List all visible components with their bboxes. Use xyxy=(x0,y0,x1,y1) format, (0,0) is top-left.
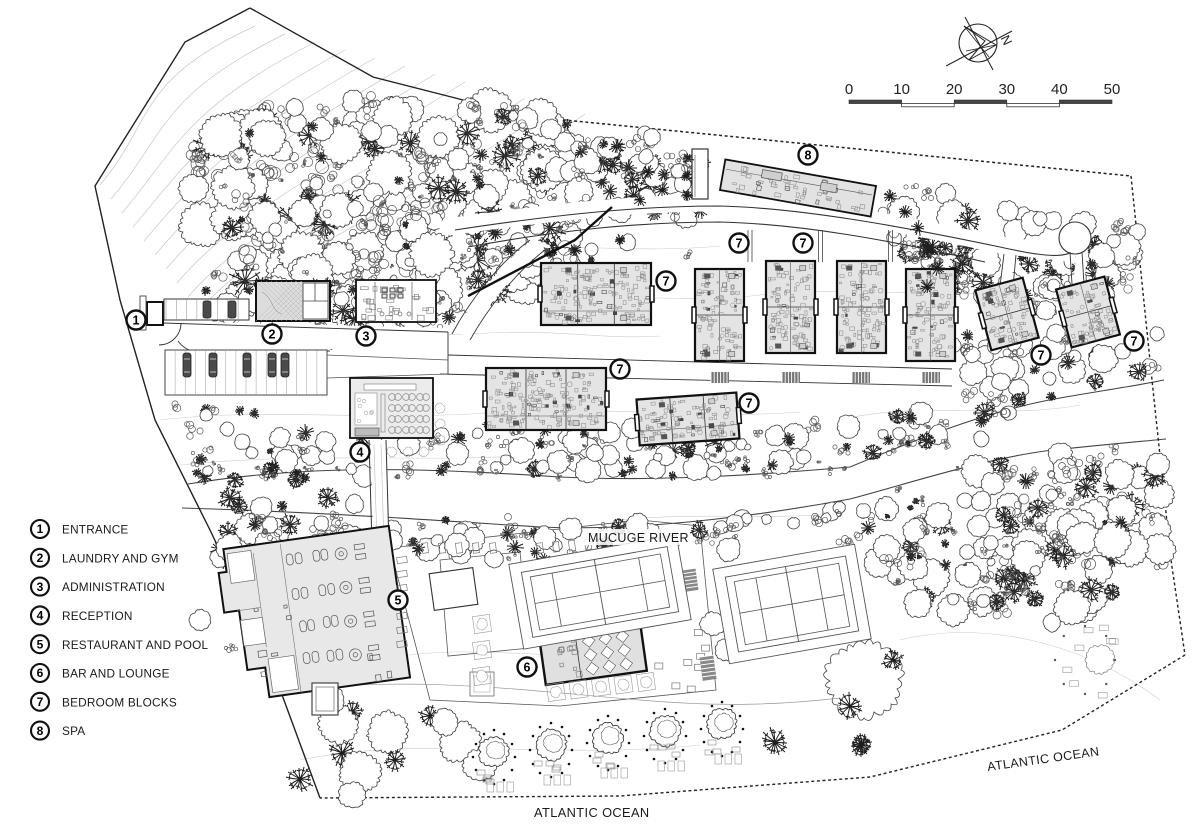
svg-text:1: 1 xyxy=(37,522,44,536)
svg-text:BAR AND LOUNGE: BAR AND LOUNGE xyxy=(62,667,170,681)
svg-text:5: 5 xyxy=(395,593,402,607)
svg-text:7: 7 xyxy=(800,236,807,250)
svg-text:5: 5 xyxy=(37,637,44,651)
svg-text:30: 30 xyxy=(998,81,1015,98)
svg-text:MUCUGE RIVER: MUCUGE RIVER xyxy=(588,531,689,545)
svg-text:SPA: SPA xyxy=(62,724,85,738)
svg-text:ATLANTIC OCEAN: ATLANTIC OCEAN xyxy=(534,805,650,820)
svg-text:BEDROOM BLOCKS: BEDROOM BLOCKS xyxy=(62,695,177,709)
svg-text:LAUNDRY AND GYM: LAUNDRY AND GYM xyxy=(62,551,179,565)
svg-text:3: 3 xyxy=(37,580,44,594)
svg-text:2: 2 xyxy=(269,327,276,341)
svg-text:3: 3 xyxy=(363,329,370,343)
svg-text:7: 7 xyxy=(37,695,44,709)
svg-text:40: 40 xyxy=(1051,81,1068,98)
svg-text:6: 6 xyxy=(524,660,531,674)
svg-text:10: 10 xyxy=(893,81,910,98)
svg-text:20: 20 xyxy=(946,81,963,98)
svg-text:7: 7 xyxy=(663,274,670,288)
svg-text:7: 7 xyxy=(1038,348,1045,362)
svg-text:50: 50 xyxy=(1104,81,1121,98)
svg-text:7: 7 xyxy=(746,396,753,410)
svg-text:1: 1 xyxy=(133,313,140,327)
svg-text:8: 8 xyxy=(805,148,812,162)
svg-text:ENTRANCE: ENTRANCE xyxy=(62,523,129,537)
svg-text:4: 4 xyxy=(357,445,364,459)
svg-text:0: 0 xyxy=(845,81,853,98)
svg-text:7: 7 xyxy=(617,362,624,376)
svg-text:RESTAURANT AND POOL: RESTAURANT AND POOL xyxy=(62,638,209,652)
svg-text:6: 6 xyxy=(37,666,44,680)
svg-text:2: 2 xyxy=(37,551,44,565)
svg-text:4: 4 xyxy=(37,609,44,623)
svg-text:ADMINISTRATION: ADMINISTRATION xyxy=(62,580,165,594)
svg-text:8: 8 xyxy=(37,724,44,738)
svg-text:RECEPTION: RECEPTION xyxy=(62,609,133,623)
svg-text:7: 7 xyxy=(1131,334,1138,348)
svg-text:7: 7 xyxy=(736,236,743,250)
